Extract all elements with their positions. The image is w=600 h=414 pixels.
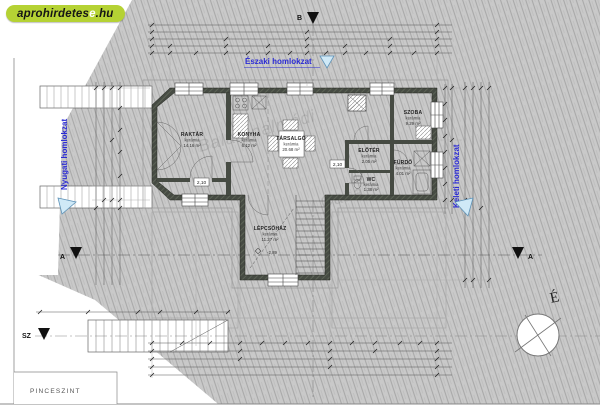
facade-west-label: Nyugati homlokzat xyxy=(60,119,69,190)
room-finish: kerámia xyxy=(362,154,378,159)
facade-east-label: Keleti homlokzat xyxy=(452,144,461,208)
door-height: 2,10 xyxy=(333,162,343,168)
floor-plan-screenshot: Balatonalmádi Casa PINCESZINT xyxy=(0,0,600,414)
room-area: 9.29 m² xyxy=(406,121,421,126)
room-finish: kerámia xyxy=(396,166,412,171)
door-height: 2,10 xyxy=(197,180,207,186)
cabinet xyxy=(416,126,431,139)
section-sz-label: SZ xyxy=(22,333,32,340)
site-logo[interactable]: aprohirdetese.hu xyxy=(6,5,125,22)
room-finish: kerámia xyxy=(284,142,300,147)
section-a-label: A xyxy=(528,254,533,261)
room-label-szoba: SZOBA kerámia 9.29 m² xyxy=(404,110,423,126)
room-area: 11.27 m² xyxy=(261,237,279,242)
floor-plan-canvas: Balatonalmádi Casa PINCESZINT xyxy=(0,0,600,414)
room-area: 2.05 m² xyxy=(362,159,377,164)
chair xyxy=(283,120,298,130)
chimney xyxy=(348,95,366,111)
floor-title: PINCESZINT xyxy=(30,388,81,395)
logo-text-main: aprohirdetes xyxy=(17,8,89,20)
room-area: 1.38 m² xyxy=(364,187,379,192)
chair xyxy=(283,158,298,168)
logo-text-suffix: .hu xyxy=(96,8,114,20)
logo-text-accent: e xyxy=(89,8,96,20)
room-area: 4.01 m² xyxy=(396,171,411,176)
room-area: 14.16 m² xyxy=(183,143,201,148)
facade-north-label: Északi homlokzat xyxy=(245,57,312,66)
level-value: -2,89 xyxy=(267,250,278,255)
room-area: 20.68 m² xyxy=(282,147,300,152)
room-finish: kerámia xyxy=(185,138,201,143)
room-finish: kerámia xyxy=(263,232,279,237)
section-a-label: A xyxy=(60,254,65,261)
room-finish: kerámia xyxy=(406,116,422,121)
room-finish: kerámia xyxy=(242,138,258,143)
chair xyxy=(305,136,315,151)
room-area: 6.12 m² xyxy=(242,143,257,148)
section-b-label: B xyxy=(297,15,302,22)
room-label-furdo: FÜRDŐ kerámia 4.01 m² xyxy=(394,159,413,176)
